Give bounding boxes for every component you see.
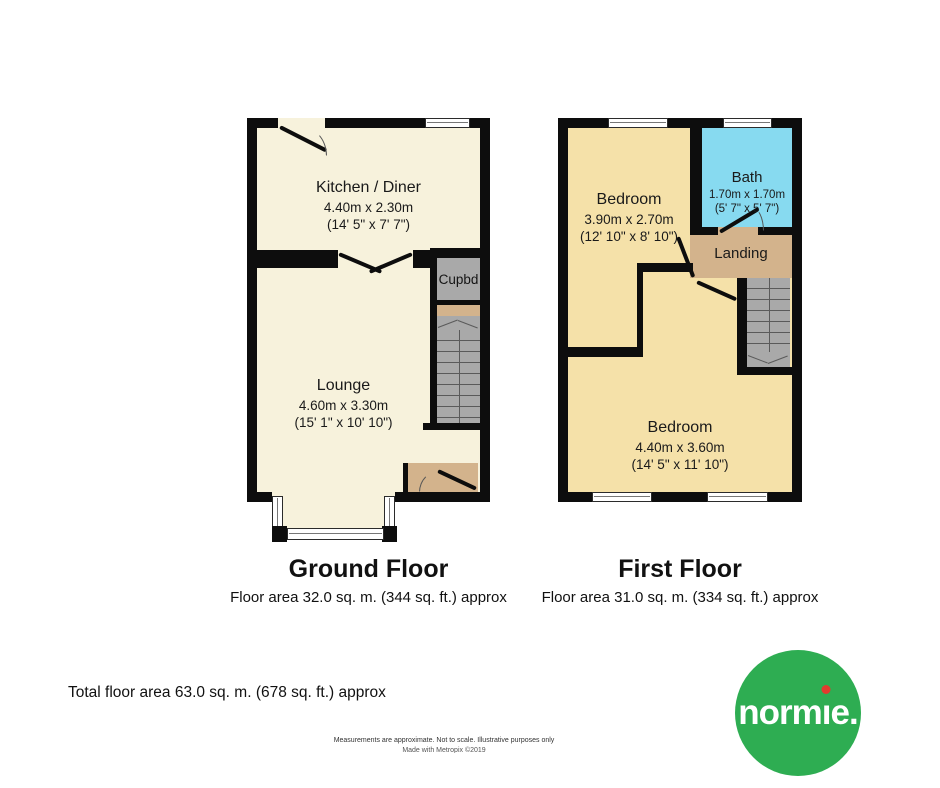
room-name: Kitchen / Diner — [316, 178, 421, 199]
bedroom2-window — [592, 492, 652, 502]
room-label-kitchen: Kitchen / Diner 4.40m x 2.30m (14' 5" x … — [257, 178, 480, 234]
wall — [558, 118, 568, 502]
floorplan-page: Kitchen / Diner 4.40m x 2.30m (14' 5" x … — [0, 0, 940, 788]
wall — [247, 118, 257, 502]
room-label-bedroom1: Bedroom 3.90m x 2.70m (12' 10" x 8' 10") — [568, 190, 690, 246]
room-dim-metric: 4.40m x 2.30m — [324, 199, 413, 217]
bay-post — [382, 526, 397, 542]
bay-floor — [272, 492, 395, 528]
room-label-cupboard: Cupbd — [437, 258, 480, 300]
logo-i-dot — [822, 685, 831, 694]
ground-floor-title: Ground Floor — [247, 555, 490, 584]
logo-text-post: e. — [831, 693, 858, 732]
room-dim-imperial: (5' 7" x 5' 7") — [715, 202, 779, 217]
room-name: Landing — [714, 244, 767, 264]
wall-stairs — [430, 250, 437, 430]
room-dim-metric: 1.70m x 1.70m — [709, 188, 785, 203]
room-dim-imperial: (15' 1" x 10' 10") — [294, 414, 392, 432]
room-name: Bath — [732, 168, 763, 188]
logo-letter-i: ı — [822, 693, 831, 733]
logo-text-pre: norm — [738, 693, 822, 732]
stair-landing-strip — [437, 305, 480, 316]
bay-window-front — [287, 528, 384, 540]
first-floor-area: Floor area 31.0 sq. m. (334 sq. ft.) app… — [533, 589, 827, 606]
wall — [430, 248, 480, 258]
room-label-lounge: Lounge 4.60m x 3.30m (15' 1" x 10' 10") — [257, 376, 430, 432]
normie-logo: normıe. — [735, 650, 861, 776]
room-name: Bedroom — [597, 190, 662, 211]
bay-window-right — [384, 496, 395, 528]
kitchen-window — [425, 118, 470, 128]
room-name: Cupbd — [439, 272, 479, 287]
wall — [480, 118, 490, 502]
stairs-arrow-up — [438, 320, 458, 328]
logo-i-stem: ı — [822, 693, 831, 732]
bay-post — [272, 526, 287, 542]
wall-stairs — [737, 278, 747, 375]
stair-treads — [437, 330, 480, 423]
first-floor-title: First Floor — [558, 555, 802, 584]
room-dim-imperial: (14' 5" x 11' 10") — [631, 456, 728, 474]
stairs-up — [437, 316, 480, 423]
wall — [423, 423, 480, 430]
ground-floor-plan: Kitchen / Diner 4.40m x 2.30m (14' 5" x … — [247, 118, 490, 542]
credit-text: Made with Metropix ©2019 — [288, 746, 600, 753]
disclaimer-text: Measurements are approximate. Not to sca… — [288, 737, 600, 744]
room-dim-metric: 4.40m x 3.60m — [635, 439, 724, 457]
wall — [737, 367, 792, 375]
room-dim-imperial: (14' 5" x 7' 7") — [327, 216, 410, 234]
bay-window-left — [272, 496, 283, 528]
wall-stub — [637, 263, 643, 357]
room-dim-metric: 3.90m x 2.70m — [584, 211, 673, 229]
wall — [792, 118, 802, 502]
stairs-arrow-down — [768, 356, 788, 364]
wall-bed1-bed2 — [558, 347, 642, 357]
bedroom2-window — [707, 492, 768, 502]
room-label-landing: Landing — [690, 244, 792, 264]
stair-treads — [747, 278, 790, 352]
bedroom1-window — [608, 118, 668, 128]
bath-window — [723, 118, 772, 128]
room-dim-metric: 4.60m x 3.30m — [299, 397, 388, 415]
room-dim-imperial: (12' 10" x 8' 10") — [580, 228, 678, 246]
stairs-down — [747, 278, 790, 367]
room-name: Lounge — [317, 376, 370, 397]
stairs-arrow-up — [458, 320, 478, 328]
first-floor-plan: Bedroom 3.90m x 2.70m (12' 10" x 8' 10")… — [558, 118, 802, 502]
normie-logo-text: normıe. — [738, 693, 857, 733]
stairs-arrow-down — [748, 355, 768, 363]
room-name: Bedroom — [648, 418, 713, 439]
room-label-bedroom2: Bedroom 4.40m x 3.60m (14' 5" x 11' 10") — [568, 418, 792, 474]
total-floor-area: Total floor area 63.0 sq. m. (678 sq. ft… — [68, 684, 386, 702]
room-label-bath: Bath 1.70m x 1.70m (5' 7" x 5' 7") — [702, 168, 792, 217]
wall-bed1-bath — [690, 128, 702, 227]
ground-floor-area: Floor area 32.0 sq. m. (344 sq. ft.) app… — [222, 589, 515, 606]
wall — [637, 263, 693, 272]
